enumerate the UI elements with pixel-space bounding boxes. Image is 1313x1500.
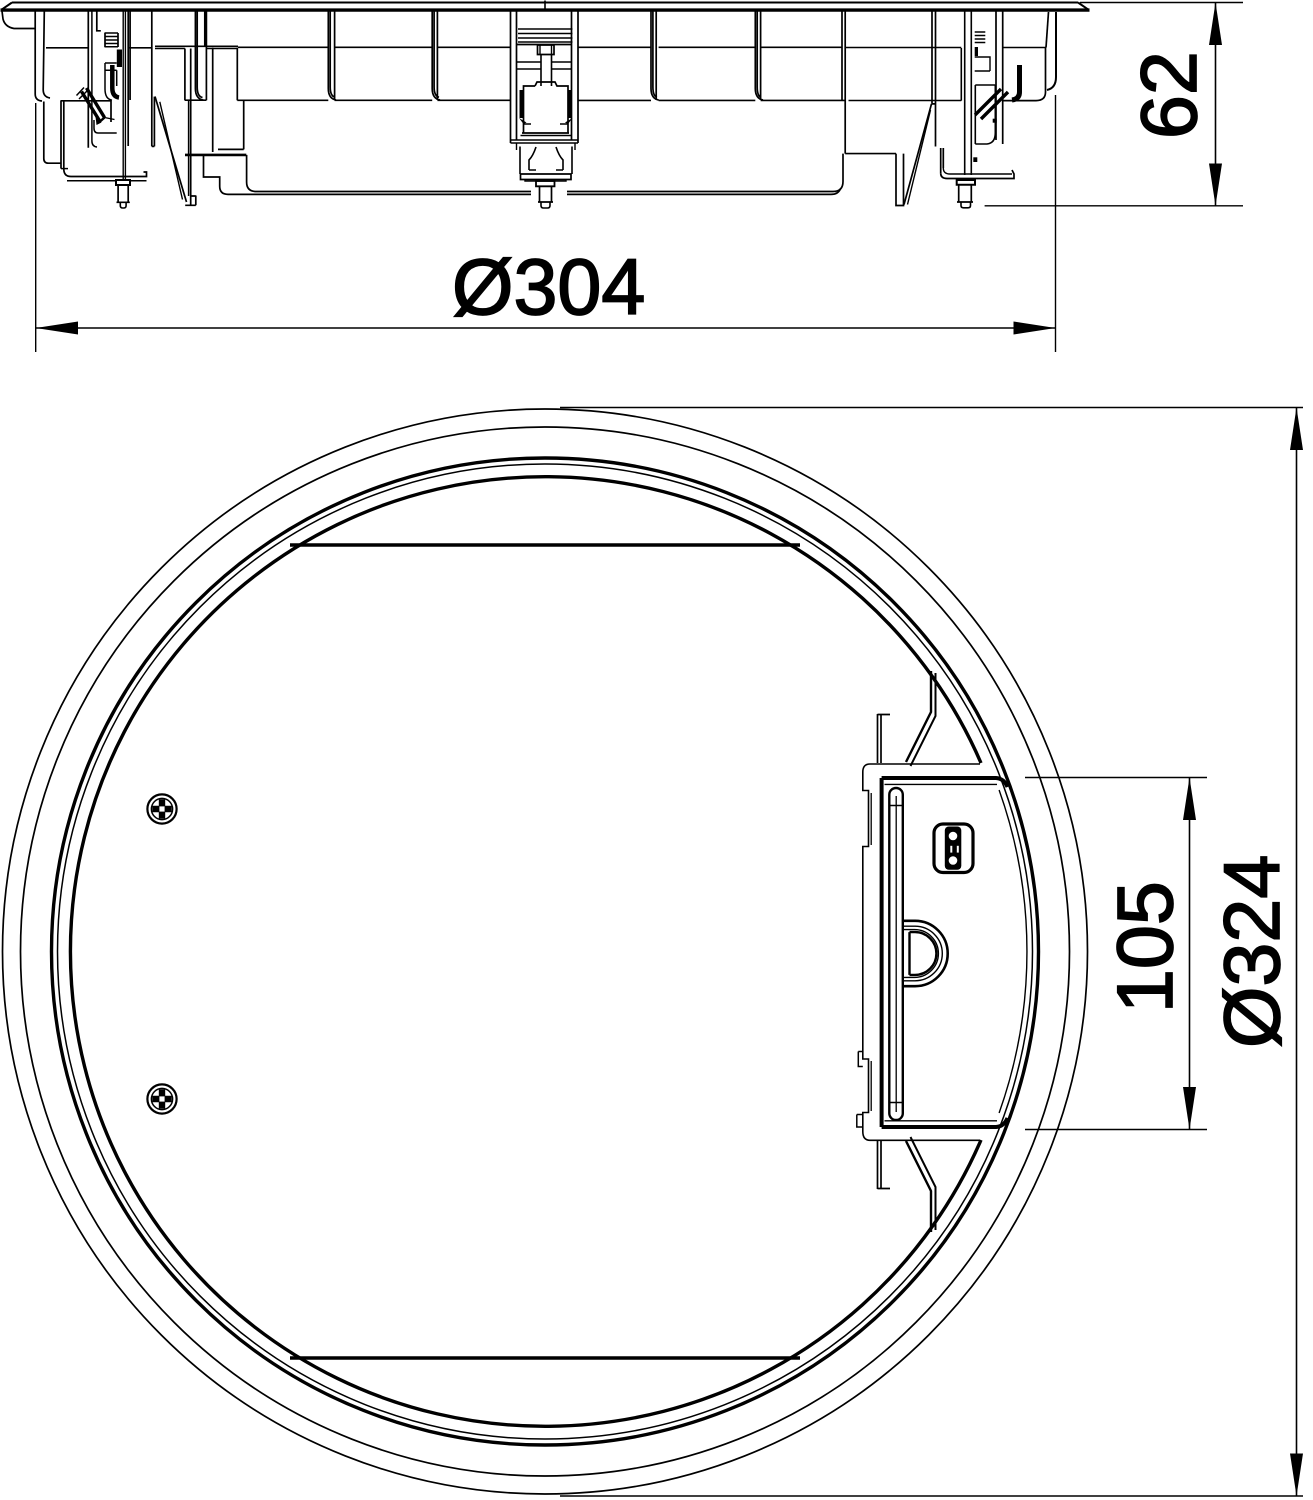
svg-text:Ø304: Ø304: [452, 242, 645, 331]
svg-text:62: 62: [1124, 51, 1213, 139]
svg-text:105: 105: [1100, 881, 1189, 1013]
svg-text:Ø324: Ø324: [1207, 855, 1296, 1048]
